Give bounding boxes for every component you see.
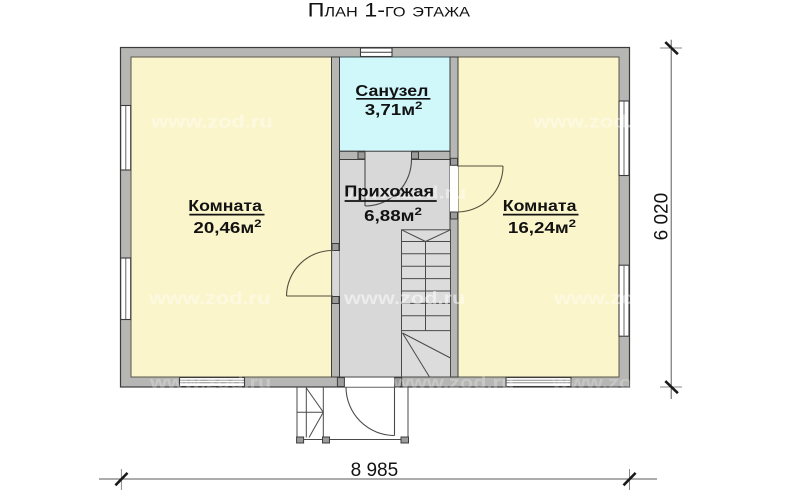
svg-text:www.zod.ru: www.zod.ru bbox=[150, 112, 272, 132]
svg-text:План 1-го этажа: План 1-го этажа bbox=[308, 0, 470, 21]
svg-text:3,71м2: 3,71м2 bbox=[365, 99, 423, 119]
svg-text:www.zod.ru: www.zod.ru bbox=[392, 373, 514, 393]
svg-text:20,46м2: 20,46м2 bbox=[193, 217, 261, 237]
svg-text:6 020: 6 020 bbox=[652, 193, 673, 241]
svg-text:Прихожая: Прихожая bbox=[344, 183, 434, 200]
svg-text:www.zod.ru: www.zod.ru bbox=[532, 112, 654, 132]
svg-text:8 985: 8 985 bbox=[351, 460, 399, 481]
svg-text:Санузел: Санузел bbox=[355, 82, 428, 100]
svg-text:www.zod.ru: www.zod.ru bbox=[149, 373, 271, 393]
svg-text:www.zod.ru: www.zod.ru bbox=[551, 373, 673, 393]
svg-text:16,24м2: 16,24м2 bbox=[508, 217, 576, 237]
svg-text:www.zod.ru: www.zod.ru bbox=[343, 289, 465, 309]
svg-text:www.zod.ru: www.zod.ru bbox=[148, 289, 270, 309]
svg-text:www.zod.ru: www.zod.ru bbox=[553, 289, 675, 309]
svg-text:6,88м2: 6,88м2 bbox=[364, 205, 422, 225]
svg-text:Комната: Комната bbox=[503, 197, 577, 215]
svg-text:Комната: Комната bbox=[188, 197, 262, 215]
